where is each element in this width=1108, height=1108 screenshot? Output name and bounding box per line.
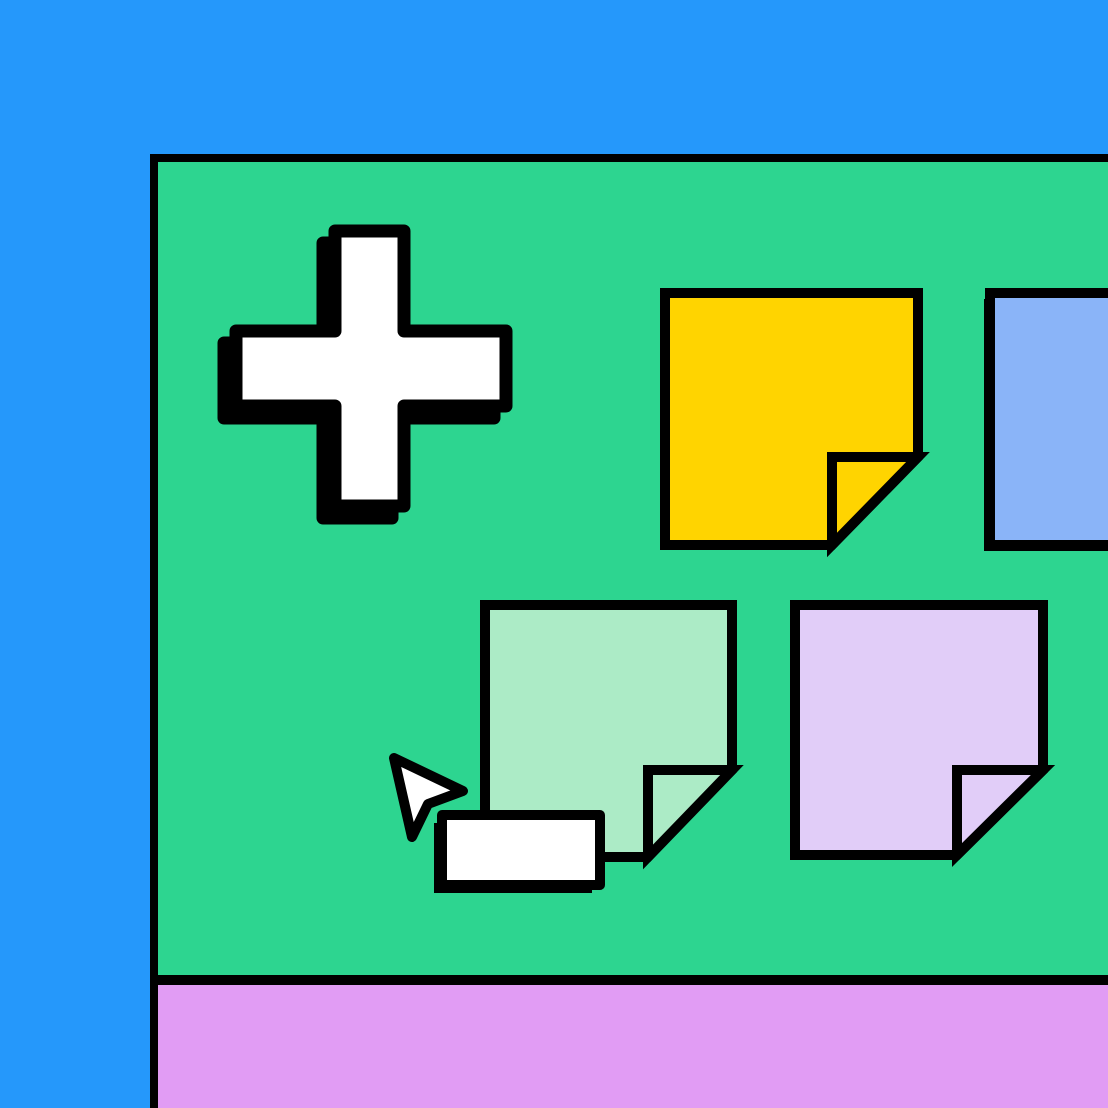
- sticky-note-periwinkle[interactable]: [984, 293, 1108, 551]
- note-label-box[interactable]: [434, 815, 600, 893]
- illustration-canvas: [0, 0, 1108, 1108]
- notes-board-illustration: [0, 0, 1108, 1108]
- bottom-dock: [158, 985, 1108, 1108]
- note-body: [990, 293, 1108, 545]
- label-box: [442, 815, 600, 885]
